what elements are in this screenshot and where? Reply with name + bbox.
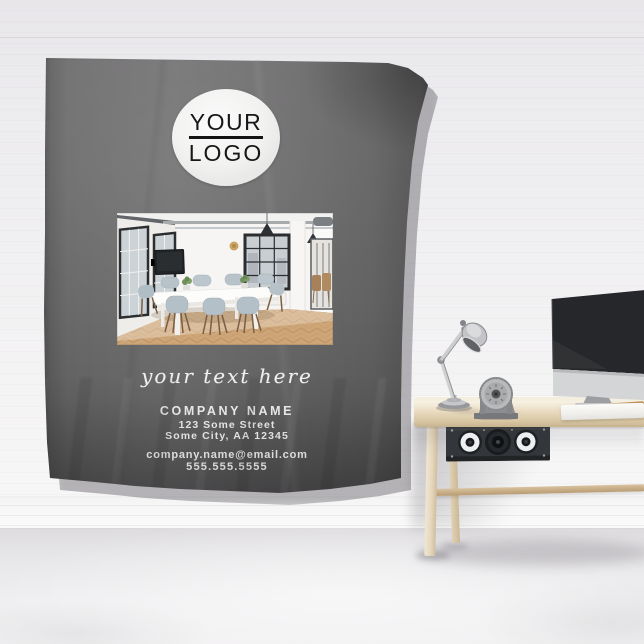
pillar [290,221,305,313]
monitor [549,288,644,418]
leg-floor-shadow [442,543,468,550]
address-line-2: Some City, AA 12345 [67,430,387,442]
air-duct [313,217,333,226]
phone-text: 555.555.5555 [67,461,387,473]
wall-tv [155,249,185,274]
logo-text-top: YOUR [190,111,262,133]
right-opening [311,239,333,309]
office-room-photo [117,213,333,345]
logo-text-bottom: LOGO [189,142,263,164]
company-name-text: COMPANY NAME [67,404,387,418]
logo-circle: YOUR LOGO [172,89,280,186]
address-line-1: 123 Some Street [67,419,387,431]
keyboard [561,403,644,420]
ceiling-pipe [163,221,333,224]
logo-divider [189,136,263,139]
desk-clock [470,376,522,420]
wall-seam-line [0,37,644,38]
email-text: company.name@email.com [67,449,387,461]
tapestry: YOUR LOGO [40,52,436,498]
product-mockup-scene: YOUR LOGO [0,0,644,644]
under-desk-speaker [446,424,550,461]
tagline-text: your text here [67,364,387,388]
desk-front-edge [414,420,644,427]
office-room-illustration [117,213,333,345]
